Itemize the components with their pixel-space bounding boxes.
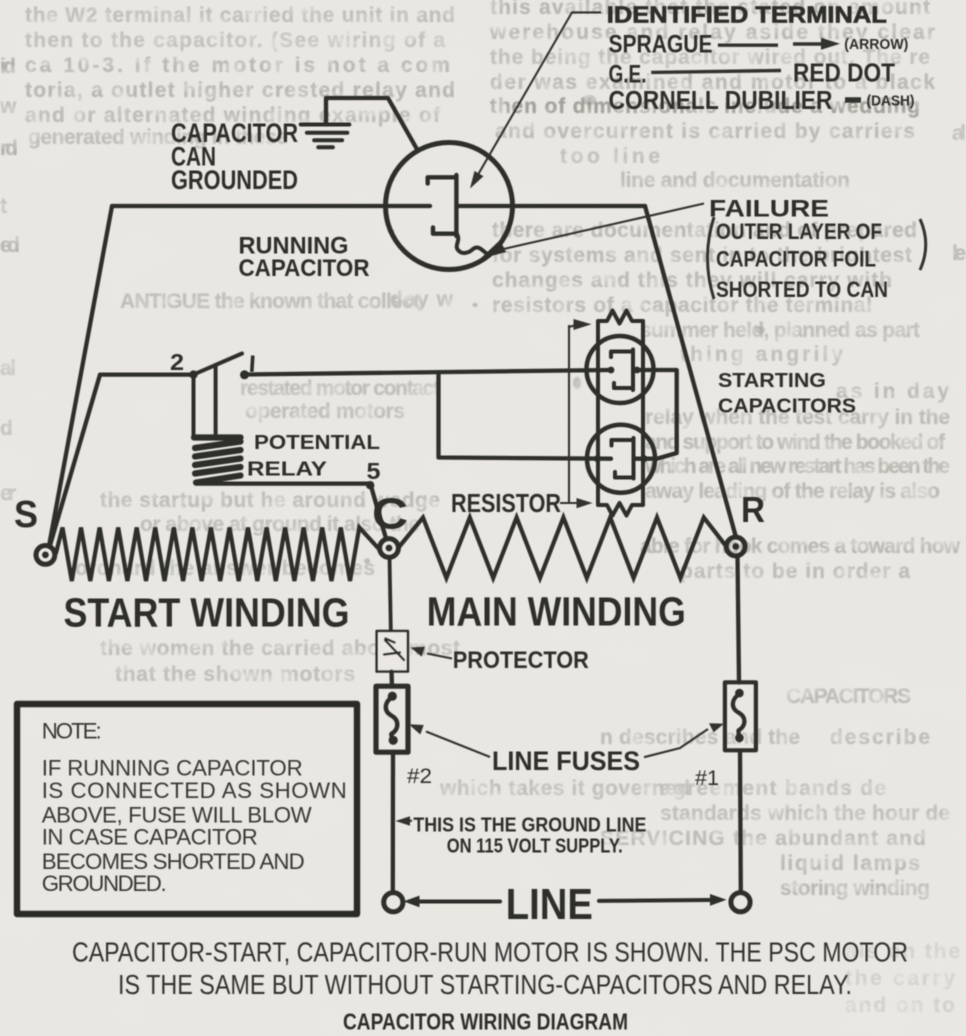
svg-text:standards which the hour de: standards which the hour de <box>660 802 950 825</box>
svg-text:STARTING: STARTING <box>718 369 826 392</box>
svg-text:restated motor contact: restated motor contact <box>240 377 440 400</box>
svg-text:IF RUNNING CAPACITOR: IF RUNNING CAPACITOR <box>42 756 303 781</box>
svg-text:operated motors: operated motors <box>245 400 405 423</box>
svg-text:PROTECTOR: PROTECTOR <box>453 647 589 674</box>
svg-text:parts to be in order a: parts to be in order a <box>680 560 910 583</box>
svg-text:R: R <box>741 489 765 530</box>
svg-text:rd: rd <box>0 137 18 160</box>
svg-text:CAPACITOR: CAPACITOR <box>239 255 370 282</box>
svg-text:CAPACITOR FOIL: CAPACITOR FOIL <box>716 247 876 272</box>
svg-text:RESISTOR: RESISTOR <box>451 490 561 518</box>
svg-text:liquid lamps: liquid lamps <box>780 852 920 875</box>
svg-text:and overcurrent is carried by: and overcurrent is carried by carriers <box>495 120 915 143</box>
svg-text:LINE: LINE <box>506 880 593 929</box>
svg-text:IDENTIFIED TERMINAL: IDENTIFIED TERMINAL <box>607 1 887 27</box>
svg-text:le: le <box>952 242 966 265</box>
svg-text:line and documentation: line and documentation <box>620 169 850 192</box>
svg-text:ca 10-3. If the motor is not a: ca 10-3. If the motor is not a com <box>25 54 450 77</box>
svg-text:ANTIGUE the known that collect: ANTIGUE the known that collect <box>120 290 420 313</box>
svg-text:RED DOT: RED DOT <box>793 60 895 88</box>
svg-text:CAPACITORS: CAPACITORS <box>718 395 856 418</box>
svg-text:CORNELL DUBILIER: CORNELL DUBILIER <box>609 87 833 115</box>
svg-text:CAPACITOR-START, CAPACITOR-RUN: CAPACITOR-START, CAPACITOR-RUN MOTOR IS … <box>72 937 908 968</box>
svg-text:#2: #2 <box>407 765 432 788</box>
svg-text:then to the capacitor. (See wi: then to the capacitor. (See wiring of a <box>25 29 445 52</box>
svg-text:ABOVE, FUSE WILL BLOW: ABOVE, FUSE WILL BLOW <box>42 802 312 827</box>
svg-text:IS THE SAME BUT WITHOUT STARTI: IS THE SAME BUT WITHOUT STARTING-CAPACIT… <box>118 969 852 1000</box>
svg-text:GROUNDED: GROUNDED <box>171 165 298 195</box>
svg-text:IN CASE CAPACITOR: IN CASE CAPACITOR <box>42 825 258 850</box>
svg-text:MAIN WINDING: MAIN WINDING <box>427 588 686 634</box>
svg-text:day w: day w <box>390 288 454 311</box>
svg-text:S: S <box>14 494 38 536</box>
svg-text:and support to wind the booked: and support to wind the booked of <box>645 431 946 454</box>
svg-text:that the shown motors: that the shown motors <box>115 663 355 686</box>
svg-text:OUTER LAYER OF: OUTER LAYER OF <box>716 219 882 244</box>
svg-text:CAPACITOR WIRING DIAGRAM: CAPACITOR WIRING DIAGRAM <box>343 1009 628 1035</box>
svg-text:#1: #1 <box>695 767 719 790</box>
svg-text:SERVICING the abundant and: SERVICING the abundant and <box>600 827 926 850</box>
svg-text:G.E.: G.E. <box>609 61 647 89</box>
svg-text:and on to: and on to <box>845 994 955 1017</box>
svg-text:w: w <box>0 95 17 118</box>
svg-text:C: C <box>372 490 408 539</box>
svg-text:START WINDING: START WINDING <box>64 590 350 636</box>
svg-text:SHORTED TO CAN: SHORTED TO CAN <box>716 277 888 302</box>
svg-text:IS CONNECTED AS SHOWN: IS CONNECTED AS SHOWN <box>42 778 347 803</box>
svg-text:t: t <box>0 195 7 218</box>
svg-text:5: 5 <box>367 458 381 484</box>
svg-text:d: d <box>0 417 13 440</box>
svg-text:describe: describe <box>830 726 930 749</box>
svg-text:(ARROW): (ARROW) <box>844 37 908 53</box>
svg-text:POTENTIAL: POTENTIAL <box>254 431 380 454</box>
svg-text:LINE FUSES: LINE FUSES <box>492 746 640 776</box>
svg-text:CAPACITORS: CAPACITORS <box>786 685 911 708</box>
svg-text:the W2 terminal it carried the: the W2 terminal it carried the unit in a… <box>25 4 455 27</box>
svg-text:the carry: the carry <box>845 967 955 990</box>
svg-text:id: id <box>0 55 16 78</box>
svg-text:agreement bands de: agreement bands de <box>660 777 886 800</box>
svg-text:NOTE:: NOTE: <box>42 719 102 744</box>
svg-text:ON 115 VOLT SUPPLY.: ON 115 VOLT SUPPLY. <box>447 836 623 858</box>
svg-text:al: al <box>952 122 966 145</box>
svg-text:away leading of the relay is a: away leading of the relay is also <box>645 480 940 503</box>
svg-text:storing winding: storing winding <box>780 877 930 900</box>
svg-text:(DASH): (DASH) <box>867 93 915 109</box>
svg-text:which takes it governed: which takes it governed <box>439 777 690 800</box>
svg-text:RELAY: RELAY <box>247 458 327 481</box>
svg-text:al: al <box>0 357 16 380</box>
svg-text:which are all new restart has: which are all new restart has been the <box>644 455 950 478</box>
svg-text:2: 2 <box>170 349 184 375</box>
svg-text:THIS IS THE GROUND LINE: THIS IS THE GROUND LINE <box>413 815 646 837</box>
svg-text:ed: ed <box>0 234 20 257</box>
svg-text:GROUNDED.: GROUNDED. <box>42 871 167 896</box>
svg-text:SPRAGUE: SPRAGUE <box>609 31 713 59</box>
